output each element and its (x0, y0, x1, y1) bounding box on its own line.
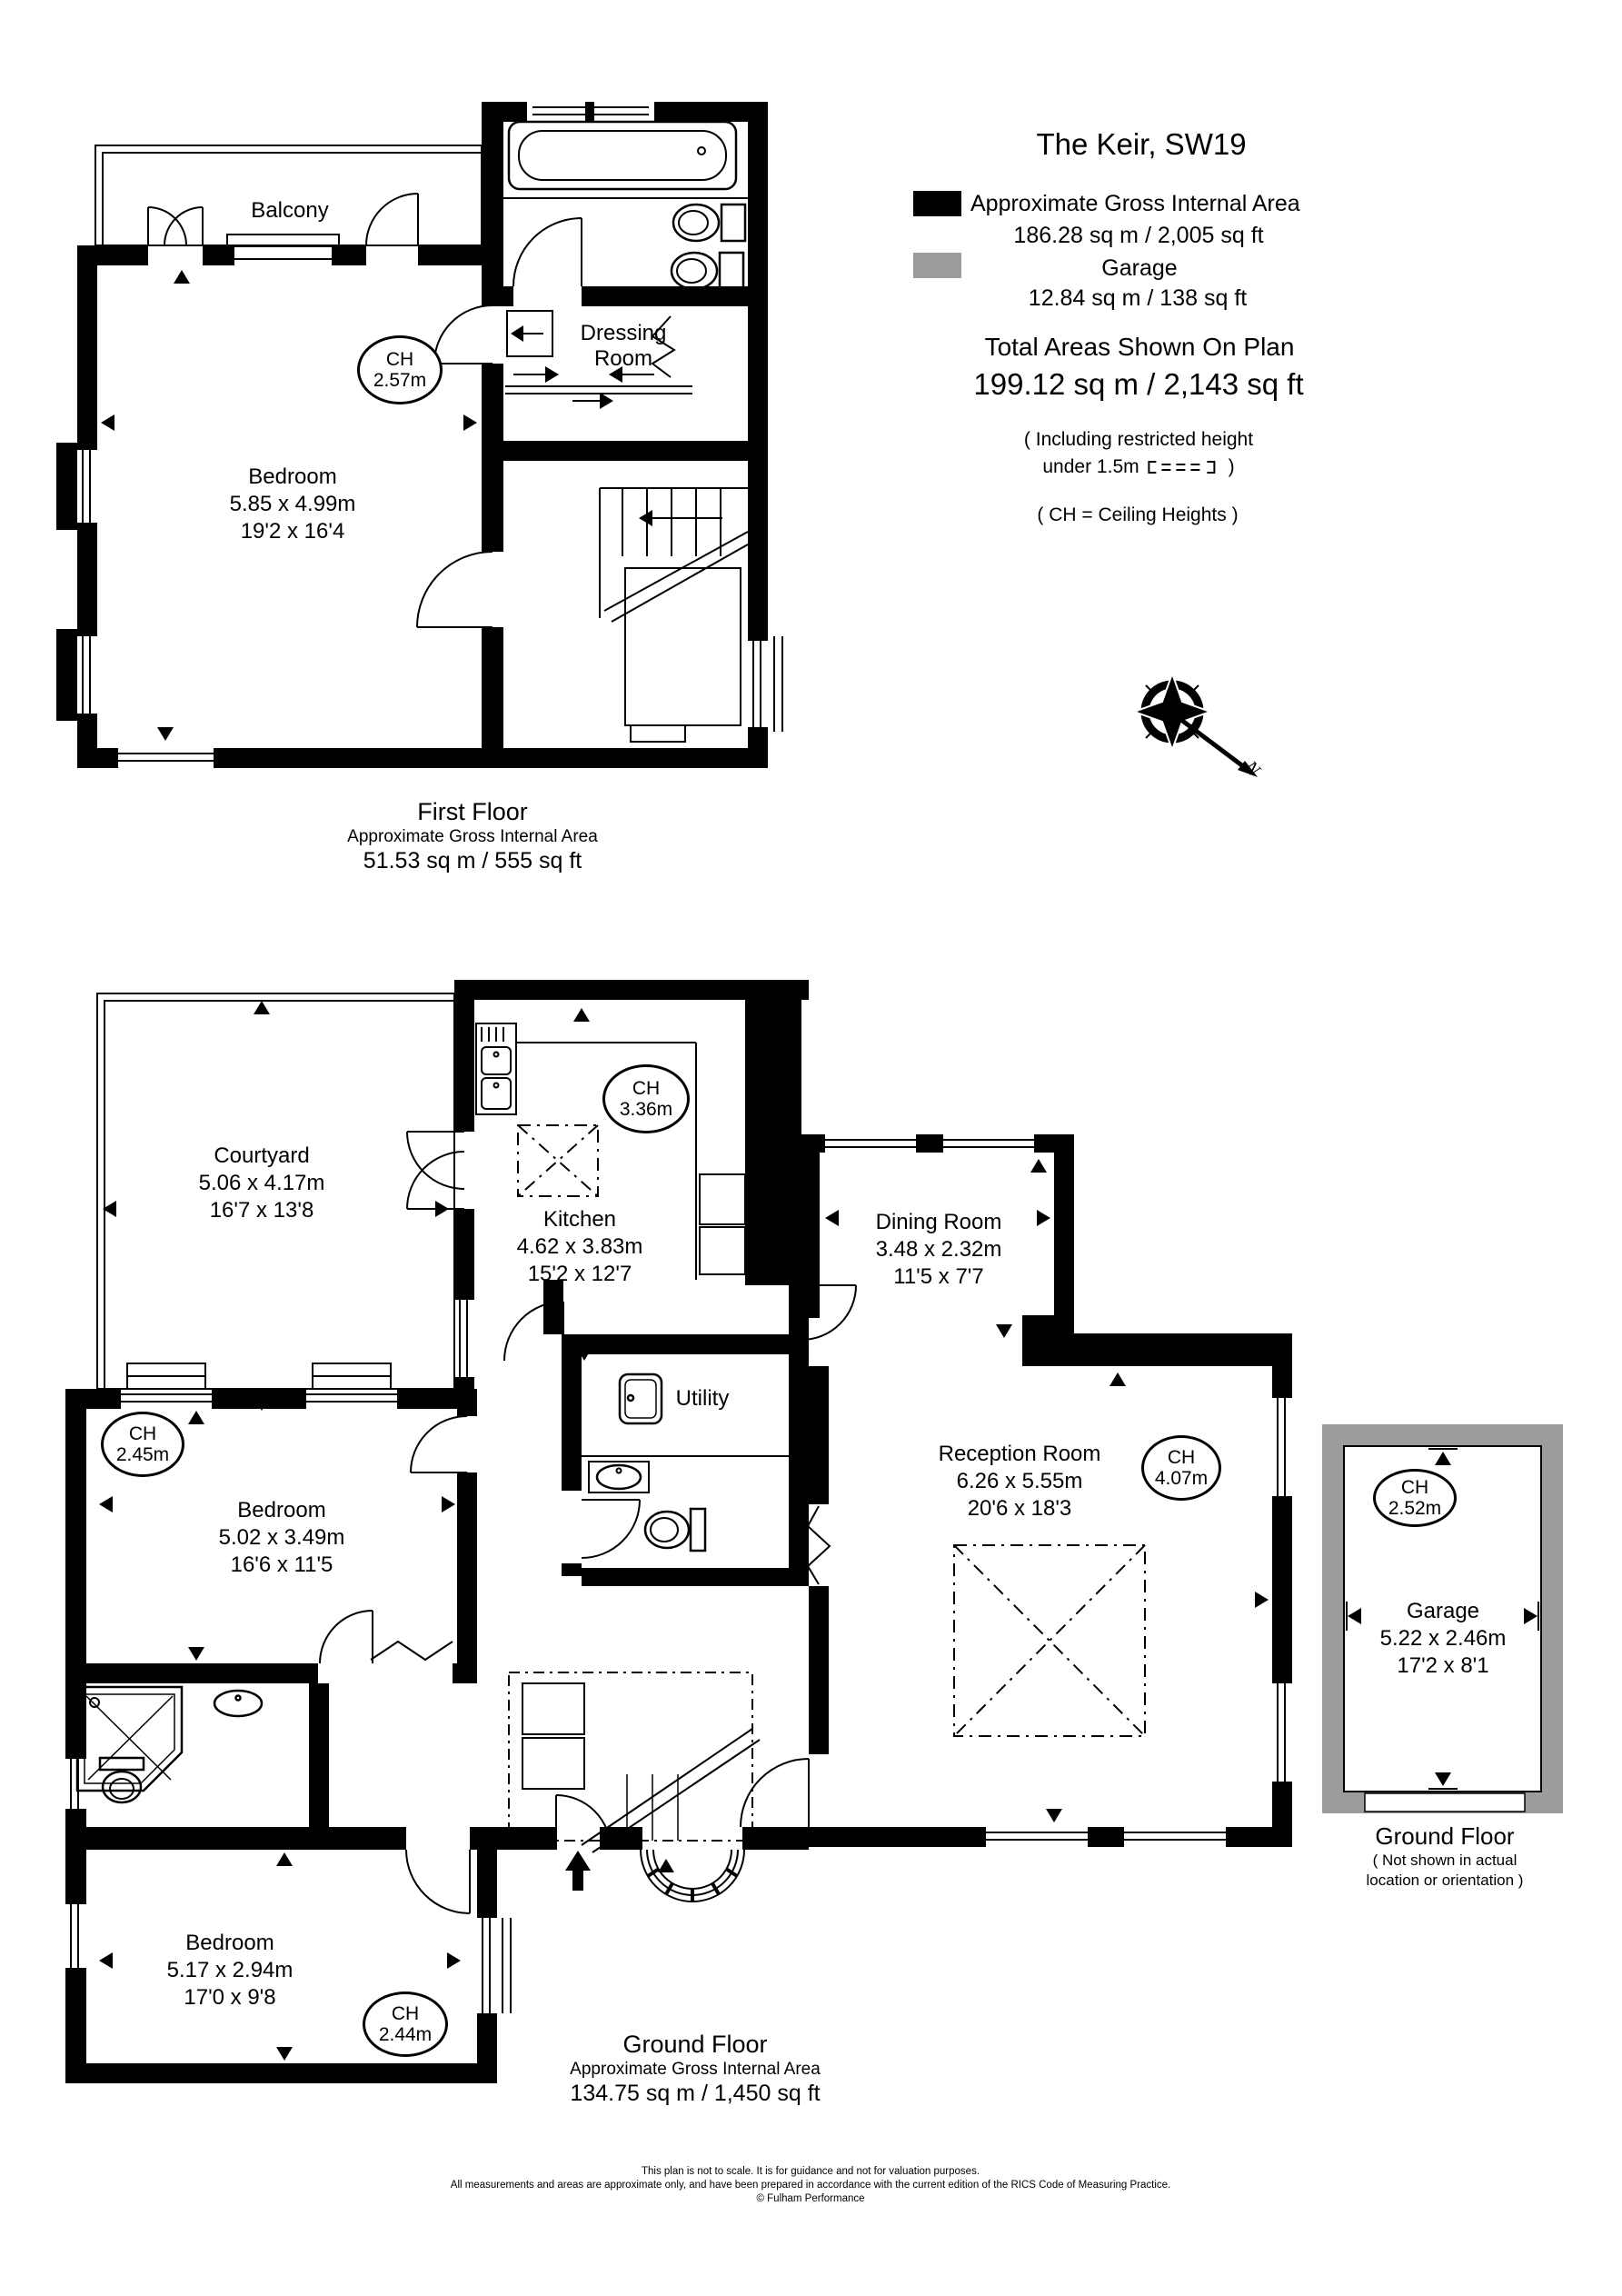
legend-internal-swatch (913, 191, 961, 216)
bathtub-icon (509, 122, 736, 189)
room-label-bedroom-first-floor: Bedroom 5.85 x 4.99m 19'2 x 16'4 (230, 464, 356, 545)
ch-bubble-reception: CH 4.07m (1141, 1435, 1221, 1501)
floorplan-sheet: The Keir, SW19 Approximate Gross Interna… (0, 0, 1622, 2296)
legend-garage-value: 12.84 sq m / 138 sq ft (1029, 285, 1247, 312)
ch-bubble-garage: CH 2.52m (1373, 1469, 1457, 1527)
compass-rose (1134, 674, 1258, 777)
rooflight-reception (954, 1545, 1145, 1736)
first-floor-lines (83, 107, 782, 761)
room-label-dressing-room: Dressing Room (581, 321, 667, 372)
legend-garage-swatch (913, 253, 961, 278)
disclaimer-line2: All measurements and areas are approxima… (451, 2179, 1170, 2192)
restricted-height-text: under 1.5m (1042, 456, 1139, 478)
garage-door (1365, 1793, 1525, 1812)
staircase-first-floor (600, 488, 748, 742)
ch-note: ( CH = Ceiling Heights ) (1037, 504, 1238, 526)
first-floor-fixtures (503, 122, 748, 289)
staircase-ground-floor (509, 1672, 760, 1852)
legend-internal-label: Approximate Gross Internal Area (970, 191, 1300, 217)
entrance-bay-steps (641, 1850, 744, 1902)
room-label-reception-room: Reception Room 6.26 x 5.55m 20'6 x 18'3 (939, 1441, 1101, 1522)
room-label-bedroom-middle: Bedroom 5.02 x 3.49m 16'6 x 11'5 (219, 1497, 345, 1579)
restricted-height-note-line1: ( Including restricted height (1024, 429, 1253, 451)
legend-internal-value: 186.28 sq m / 2,005 sq ft (1013, 223, 1263, 249)
room-label-utility: Utility (676, 1385, 730, 1413)
entrance-arrow (565, 1851, 591, 1891)
ensuite-toilet-icon (100, 1758, 144, 1802)
rooflight-kitchen (518, 1125, 598, 1196)
restricted-height-note-line2: under 1.5m ) (1042, 456, 1234, 478)
room-label-balcony: Balcony (251, 197, 328, 225)
utility-sink-icon (620, 1374, 662, 1423)
total-areas-label: Total Areas Shown On Plan (985, 333, 1295, 362)
room-label-kitchen: Kitchen 4.62 x 3.83m 15'2 x 12'7 (517, 1206, 643, 1288)
shower-icon (77, 1687, 182, 1791)
legend-garage-label: Garage (1101, 255, 1177, 282)
wc-basin-icon (589, 1462, 649, 1492)
room-label-bedroom-bottom: Bedroom 5.17 x 2.94m 17'0 x 9'8 (167, 1930, 294, 2011)
ensuite-basin-icon (214, 1691, 262, 1716)
wc-toilet-icon (645, 1509, 705, 1551)
first-floor-openings (77, 102, 768, 768)
fold-door (371, 1642, 453, 1660)
first-floor-plan (56, 102, 782, 768)
page-title: The Keir, SW19 (1036, 127, 1246, 162)
restricted-height-symbol (1146, 458, 1222, 476)
ch-bubble-bedroom-bottom: CH 2.44m (363, 1992, 448, 2057)
ground-floor-caption: Ground Floor Approximate Gross Internal … (570, 2031, 821, 2107)
room-label-courtyard: Courtyard 5.06 x 4.17m 16'7 x 13'8 (199, 1143, 325, 1224)
total-areas-value: 199.12 sq m / 2,143 sq ft (973, 367, 1303, 402)
restricted-height-close: ) (1229, 456, 1235, 478)
ch-bubble-kitchen: CH 3.36m (602, 1064, 690, 1133)
toilet-icon (673, 205, 745, 241)
first-floor-caption: First Floor Approximate Gross Internal A… (347, 798, 598, 874)
first-floor-walls (56, 102, 768, 768)
garage-caption: Ground Floor ( Not shown in actual locat… (1367, 1822, 1524, 1891)
ch-bubble-bedroom-first-floor: CH 2.57m (357, 335, 443, 404)
kitchen-sink-icon (476, 1023, 516, 1114)
balcony-outline (95, 145, 482, 245)
window-mullions (227, 102, 594, 265)
room-label-dining-room: Dining Room 3.48 x 2.32m 11'5 x 7'7 (876, 1209, 1002, 1291)
disclaimer-line3: © Fulham Performance (756, 2192, 864, 2206)
ground-floor-fixtures (77, 1023, 705, 1802)
disclaimer-line1: This plan is not to scale. It is for gui… (642, 2165, 980, 2179)
ch-bubble-bedroom-middle: CH 2.45m (101, 1412, 184, 1477)
room-label-garage: Garage 5.22 x 2.46m 17'2 x 8'1 (1380, 1598, 1507, 1680)
bidet-icon (672, 253, 743, 289)
